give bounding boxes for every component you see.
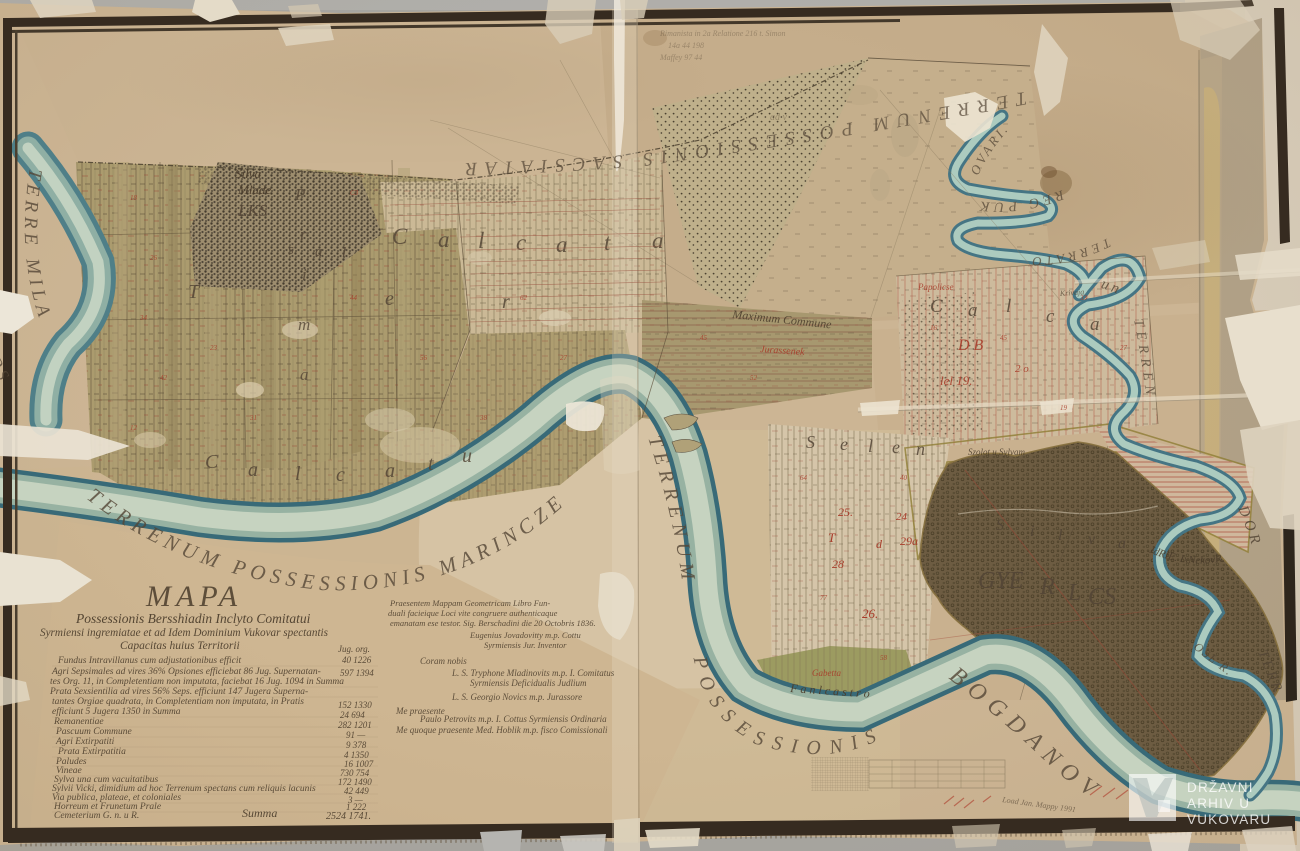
svg-text:Paulo Petrovits m.p. I. Cottus: Paulo Petrovits m.p. I. Cottus Syrmiensi…: [419, 714, 607, 724]
svg-text:a: a: [1090, 314, 1100, 335]
svg-text:P: P: [294, 185, 305, 204]
svg-text:Agri Sepsimales ad vires 36% O: Agri Sepsimales ad vires 36% Opsiones ef…: [51, 666, 321, 677]
svg-text:c: c: [516, 230, 526, 255]
svg-text:a: a: [968, 300, 978, 321]
svg-text:Syrmiensi ingremiatae et ad Id: Syrmiensi ingremiatae et ad Idem Dominiu…: [40, 627, 329, 639]
svg-text:Jug. org.: Jug. org.: [338, 644, 370, 654]
svg-text:16: 16: [930, 324, 938, 332]
svg-text:r: r: [502, 291, 510, 313]
svg-text:L. S. Tryphone Mladinovits m.p: L. S. Tryphone Mladinovits m.p. I. Comit…: [451, 668, 615, 678]
svg-text:44: 44: [350, 294, 358, 302]
svg-text:26: 26: [150, 254, 158, 262]
svg-text:l: l: [478, 228, 484, 253]
svg-text:40 1226: 40 1226: [342, 655, 372, 665]
svg-text:Rimanista in 2a Relatione 216: Rimanista in 2a Relatione 216 t. Simon: [659, 29, 786, 38]
svg-text:emanatam ese testor. Sig. Bers: emanatam ese testor. Sig. Berschadini di…: [390, 618, 596, 628]
svg-text:C: C: [930, 296, 943, 317]
svg-text:31: 31: [249, 414, 257, 422]
svg-text:27: 27: [1120, 344, 1128, 352]
svg-text:l: l: [868, 436, 873, 456]
svg-text:l: l: [1058, 527, 1063, 544]
svg-text:Summa: Summa: [242, 806, 277, 820]
svg-text:25.: 25.: [838, 505, 853, 519]
svg-text:Papolicse: Papolicse: [917, 282, 954, 292]
svg-text:38: 38: [479, 414, 488, 422]
svg-text:23: 23: [210, 344, 218, 352]
svg-text:26.: 26.: [862, 606, 878, 621]
svg-text:Maffey 97 44: Maffey 97 44: [659, 53, 702, 62]
svg-text:a: a: [652, 228, 664, 253]
svg-text:n: n: [916, 439, 925, 459]
svg-text:T: T: [188, 281, 201, 303]
svg-text:40: 40: [900, 474, 908, 482]
svg-text:19: 19: [1060, 404, 1068, 412]
svg-text:91 —: 91 —: [346, 730, 366, 740]
svg-text:l: l: [295, 463, 301, 485]
svg-text:r: r: [300, 225, 307, 244]
svg-text:Remanentiae: Remanentiae: [53, 717, 104, 727]
svg-text:v: v: [1088, 531, 1096, 548]
svg-text:duali facieique Loci vite cong: duali facieique Loci vite congruere auth…: [388, 608, 558, 618]
svg-text:C: C: [392, 224, 408, 249]
svg-text:tantes Orgiae quadrata, in Com: tantes Orgiae quadrata, in Completentiam…: [52, 697, 304, 707]
svg-text:Cemeterium G. n. u R.: Cemeterium G. n. u R.: [54, 811, 139, 821]
svg-text:18: 18: [130, 194, 138, 202]
svg-text:12: 12: [130, 424, 138, 432]
svg-text:64: 64: [800, 474, 808, 482]
svg-text:CS: CS: [1088, 584, 1116, 610]
svg-text:e: e: [385, 288, 394, 310]
svg-text:m: m: [298, 315, 310, 334]
svg-text:efficiunt 5 Jugera 1350 in Sum: efficiunt 5 Jugera 1350 in Summa: [52, 706, 181, 717]
svg-text:42: 42: [160, 374, 168, 382]
svg-text:14a 44 198: 14a 44 198: [668, 41, 704, 50]
svg-text:Prata Extirpatitia: Prata Extirpatitia: [57, 747, 126, 757]
svg-text:i: i: [302, 265, 307, 284]
svg-text:Silva: Silva: [235, 166, 261, 181]
svg-text:lel 19.: lel 19.: [940, 373, 973, 388]
svg-text:62: 62: [520, 294, 528, 302]
svg-text:152 1330: 152 1330: [338, 700, 372, 710]
svg-text:a: a: [556, 232, 568, 257]
svg-text:24: 24: [896, 511, 908, 523]
svg-text:L: L: [1067, 580, 1081, 606]
svg-text:56: 56: [420, 354, 428, 362]
svg-text:Praesentem Mappam Geometricam: Praesentem Mappam Geometricam Libro Fun-: [389, 598, 550, 608]
svg-text:a: a: [1118, 535, 1126, 552]
svg-text:C3: C3: [350, 189, 359, 197]
svg-text:2524 1741.: 2524 1741.: [326, 811, 371, 822]
svg-text:2 o: 2 o: [1015, 363, 1029, 375]
svg-text:29a: 29a: [900, 534, 918, 548]
svg-text:Syrmiensis Deficidualis Judliu: Syrmiensis Deficidualis Judlium: [470, 678, 587, 688]
svg-text:597 1394: 597 1394: [340, 668, 374, 678]
svg-text:a: a: [300, 365, 309, 384]
svg-text:t: t: [428, 453, 434, 475]
svg-text:Capacitas huius Territorii: Capacitas huius Territorii: [120, 640, 240, 652]
svg-text:L. S. Georgio Novics m.p. Jura: L. S. Georgio Novics m.p. Jurassore: [451, 692, 582, 702]
svg-text:33: 33: [1079, 294, 1088, 302]
svg-text:28: 28: [832, 557, 844, 571]
svg-text:a: a: [248, 459, 258, 481]
svg-text:l: l: [1006, 296, 1011, 317]
svg-text:a: a: [438, 227, 450, 252]
svg-text:d: d: [876, 537, 883, 551]
svg-text:27: 27: [560, 354, 568, 362]
svg-text:R: R: [1039, 574, 1055, 600]
svg-text:Possessionis Bersshiadin Incly: Possessionis Bersshiadin Inclyto Comitat…: [75, 611, 311, 626]
svg-text:Fundus Intravillanus cum adjus: Fundus Intravillanus cum adjustationibus…: [57, 655, 241, 666]
svg-text:MAPA: MAPA: [145, 580, 242, 613]
svg-text:C: C: [205, 451, 219, 473]
svg-text:S: S: [806, 432, 815, 452]
svg-text:Szolot u Sylvam: Szolot u Sylvam: [968, 447, 1025, 457]
svg-text:l: l: [342, 245, 346, 261]
svg-text:9 378: 9 378: [346, 740, 367, 750]
svg-text:c: c: [1046, 306, 1055, 327]
svg-text:45: 45: [1000, 334, 1008, 342]
svg-text:24 694: 24 694: [340, 710, 365, 720]
svg-text:Gabetta: Gabetta: [812, 668, 841, 678]
svg-text:c: c: [336, 464, 345, 486]
svg-text:GYE: GYE: [978, 568, 1024, 594]
svg-text:e: e: [892, 437, 900, 457]
svg-text:Eugenius Jovadovitty m.p. Cott: Eugenius Jovadovitty m.p. Cottu: [469, 630, 581, 640]
svg-text:58: 58: [880, 654, 888, 662]
svg-text:Agri Extirpatiti: Agri Extirpatiti: [55, 737, 115, 747]
svg-text:i: i: [1030, 523, 1034, 540]
svg-text:282 1201: 282 1201: [338, 720, 372, 730]
svg-text:a: a: [315, 244, 323, 260]
svg-text:tes Org. 11, in Completentiam: tes Org. 11, in Completentiam non imputa…: [50, 676, 344, 687]
svg-text:Me quoque praesente Med. Hobli: Me quoque praesente Med. Hoblik m.p. fis…: [395, 725, 608, 735]
svg-text:Pascuum Commune: Pascuum Commune: [55, 727, 132, 737]
svg-text:u: u: [462, 445, 472, 467]
svg-text:a: a: [385, 460, 395, 482]
svg-text:Syrmiensis Jur. Inventor: Syrmiensis Jur. Inventor: [484, 640, 567, 650]
svg-text:T: T: [828, 530, 836, 545]
svg-text:LKS: LKS: [237, 201, 268, 220]
svg-text:Coram nobis: Coram nobis: [420, 656, 467, 666]
svg-text:45: 45: [700, 334, 708, 342]
svg-text:ad v: ad v: [770, 112, 788, 123]
svg-text:e: e: [840, 434, 848, 454]
svg-text:34: 34: [139, 314, 148, 322]
svg-text:D B: D B: [957, 337, 984, 354]
svg-text:S: S: [996, 517, 1004, 534]
svg-text:Mlade: Mlade: [237, 182, 271, 197]
svg-text:Prata Sexsientilia ad vires 56: Prata Sexsientilia ad vires 56% Seps. ef…: [49, 686, 308, 697]
svg-text:VUKOVARU: VUKOVARU: [1187, 812, 1271, 827]
svg-text:77: 77: [820, 594, 828, 602]
svg-text:ARHIV U: ARHIV U: [1187, 796, 1250, 811]
svg-text:s: s: [288, 242, 294, 258]
svg-text:52: 52: [750, 374, 758, 382]
svg-text:DRŽAVNI: DRŽAVNI: [1187, 780, 1254, 795]
